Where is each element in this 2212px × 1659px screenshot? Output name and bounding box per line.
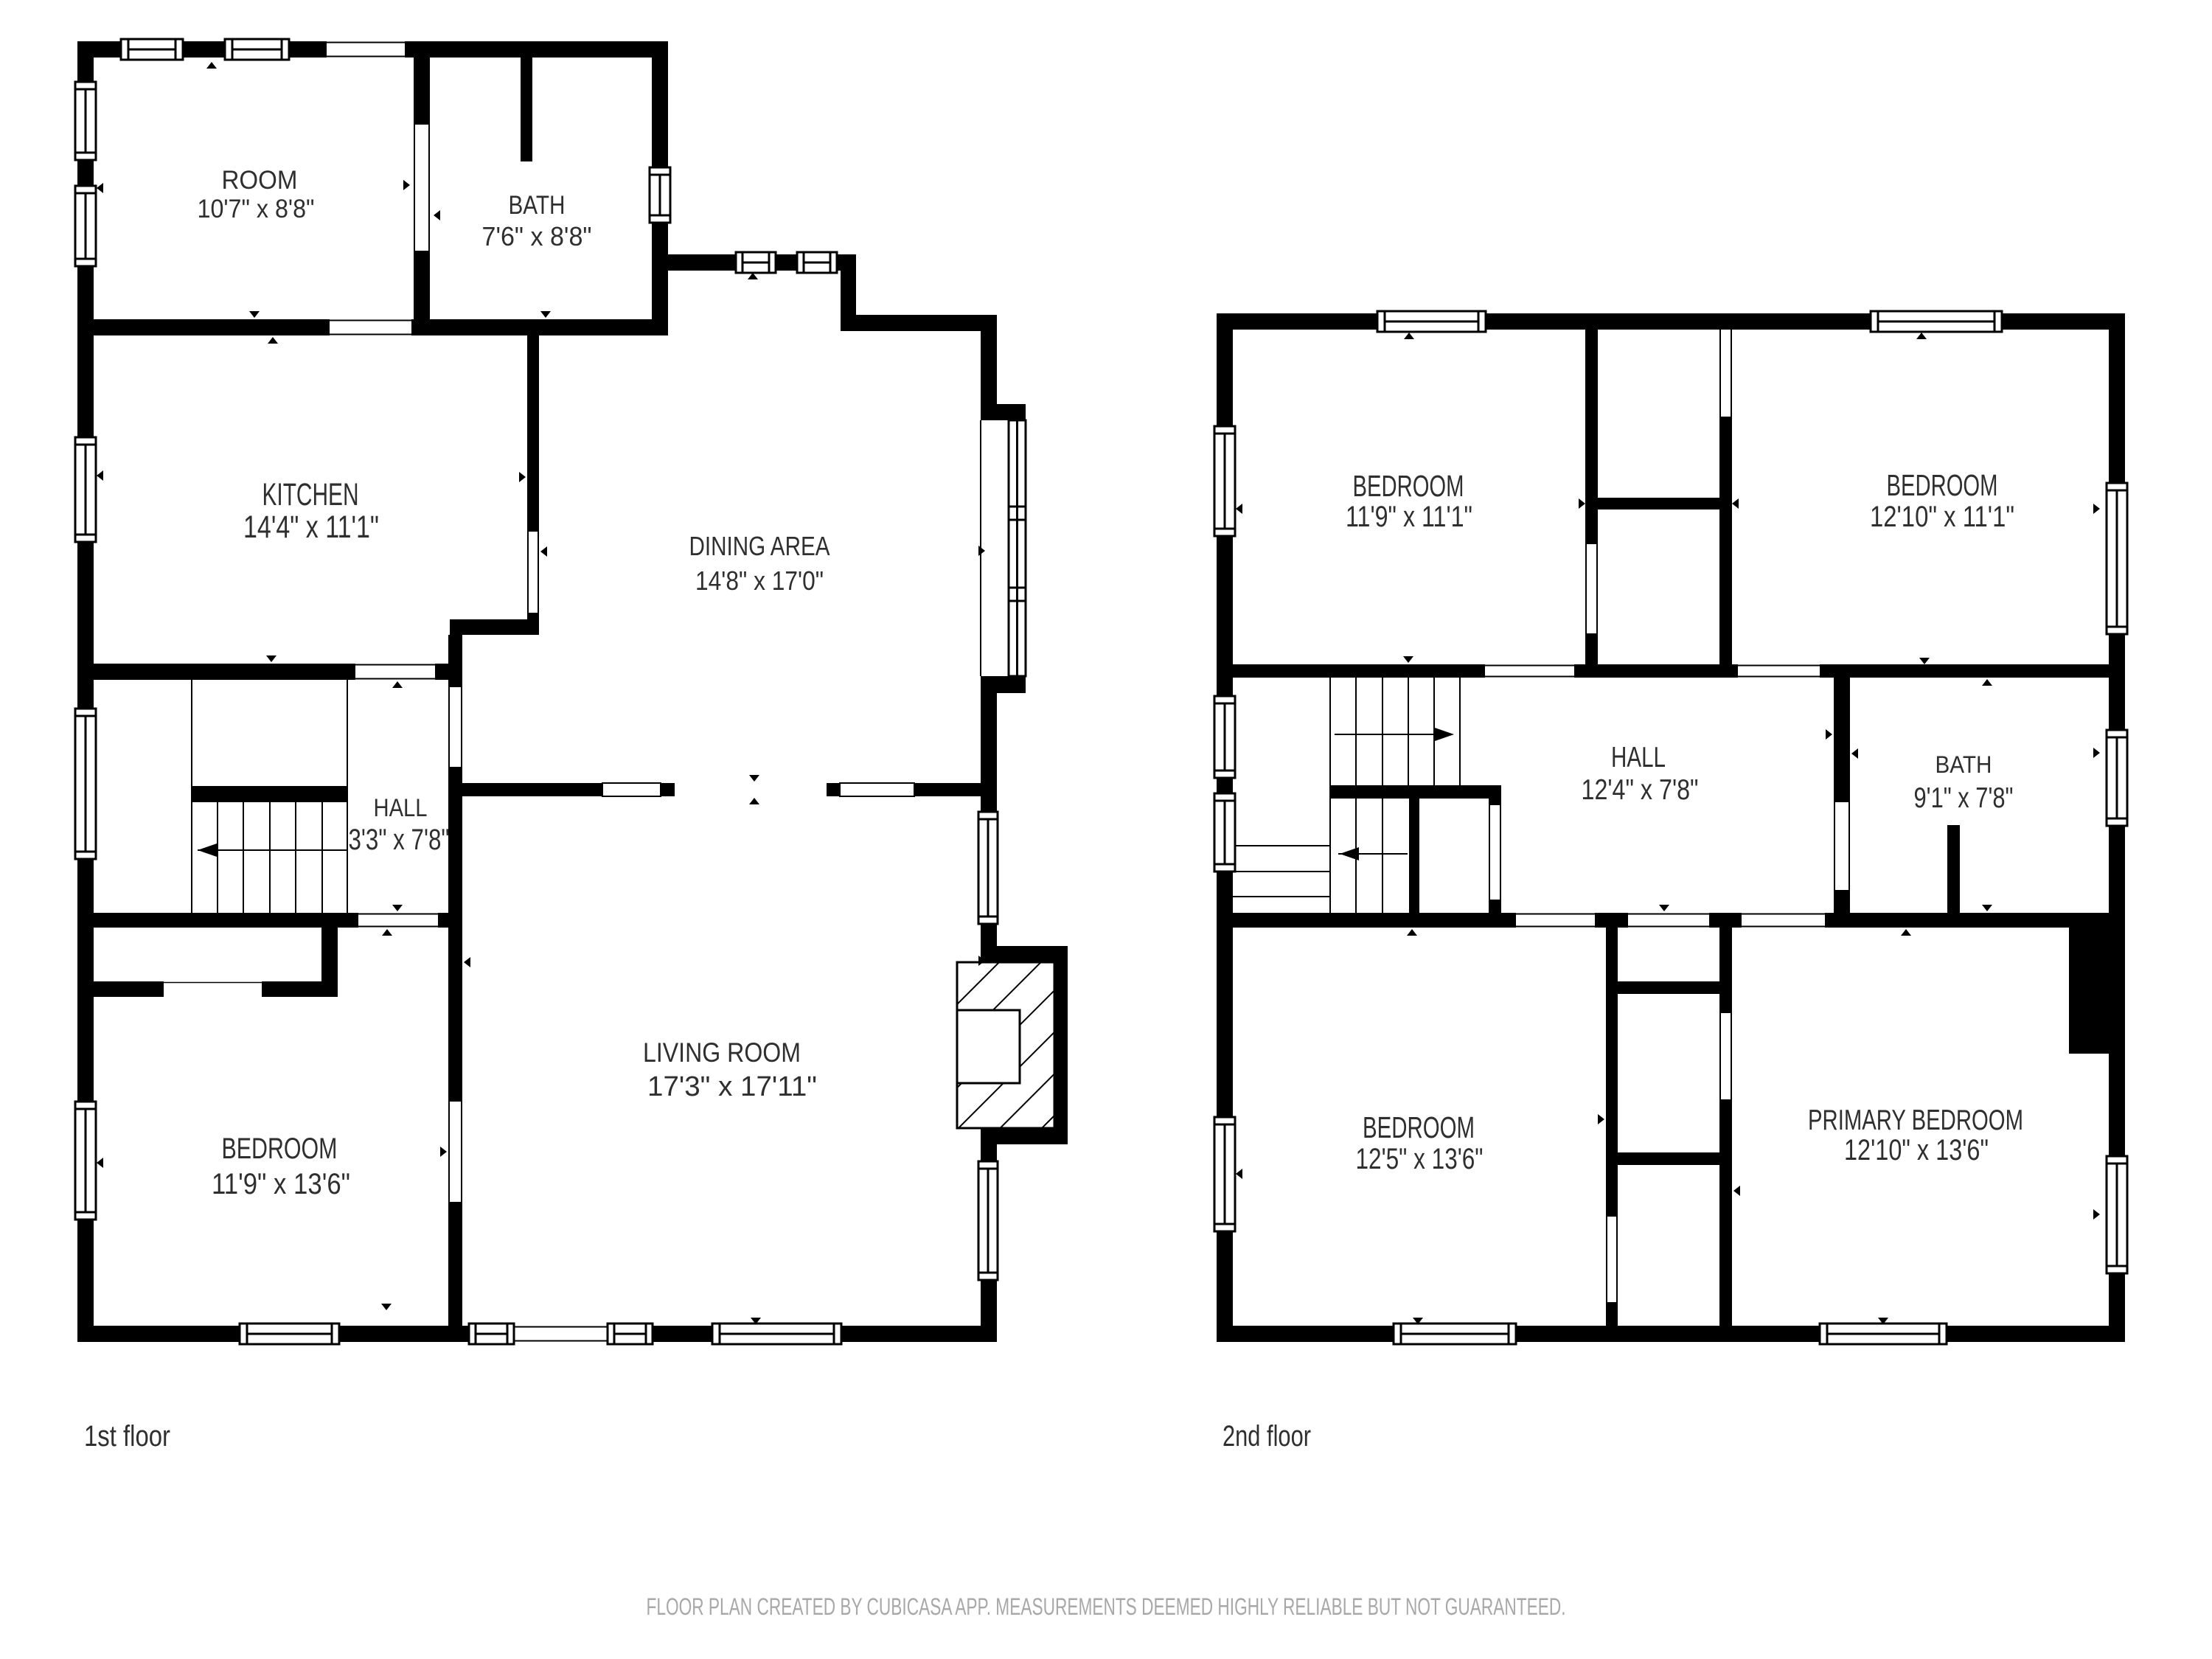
svg-text:3'3" x 7'8": 3'3" x 7'8" <box>349 824 450 856</box>
svg-text:1st floor: 1st floor <box>84 1420 170 1453</box>
svg-text:7'6" x 8'8": 7'6" x 8'8" <box>482 221 592 251</box>
svg-text:BEDROOM: BEDROOM <box>222 1133 338 1165</box>
svg-text:14'8" x 17'0": 14'8" x 17'0" <box>695 566 824 596</box>
svg-text:PRIMARY BEDROOM: PRIMARY BEDROOM <box>1808 1105 2023 1136</box>
svg-text:DINING AREA: DINING AREA <box>689 531 830 561</box>
svg-text:ROOM: ROOM <box>222 166 298 195</box>
svg-text:12'10" x 13'6": 12'10" x 13'6" <box>1844 1134 1989 1166</box>
svg-text:HALL: HALL <box>1611 742 1666 773</box>
svg-text:HALL: HALL <box>374 794 428 822</box>
svg-text:11'9" x 11'1": 11'9" x 11'1" <box>1346 501 1472 533</box>
svg-text:FLOOR PLAN CREATED BY CUBICASA: FLOOR PLAN CREATED BY CUBICASA APP. MEAS… <box>647 1593 1566 1620</box>
svg-text:17'3" x 17'11": 17'3" x 17'11" <box>647 1071 817 1102</box>
svg-text:12'5" x 13'6": 12'5" x 13'6" <box>1356 1143 1484 1175</box>
svg-text:14'4" x 11'1": 14'4" x 11'1" <box>243 509 379 545</box>
svg-text:LIVING ROOM: LIVING ROOM <box>643 1037 801 1068</box>
svg-text:BATH: BATH <box>1935 751 1992 778</box>
svg-text:10'7" x 8'8": 10'7" x 8'8" <box>198 195 315 223</box>
svg-text:BEDROOM: BEDROOM <box>1353 469 1464 503</box>
svg-text:2nd floor: 2nd floor <box>1222 1420 1311 1453</box>
svg-text:BATH: BATH <box>509 191 566 220</box>
svg-text:9'1" x 7'8": 9'1" x 7'8" <box>1914 782 2014 814</box>
svg-text:12'10" x 11'1": 12'10" x 11'1" <box>1870 501 2014 533</box>
svg-text:BEDROOM: BEDROOM <box>1887 468 1998 502</box>
svg-text:KITCHEN: KITCHEN <box>262 477 359 512</box>
svg-text:BEDROOM: BEDROOM <box>1363 1110 1475 1144</box>
svg-text:11'9" x 13'6": 11'9" x 13'6" <box>212 1168 350 1200</box>
svg-text:12'4" x 7'8": 12'4" x 7'8" <box>1582 774 1699 806</box>
